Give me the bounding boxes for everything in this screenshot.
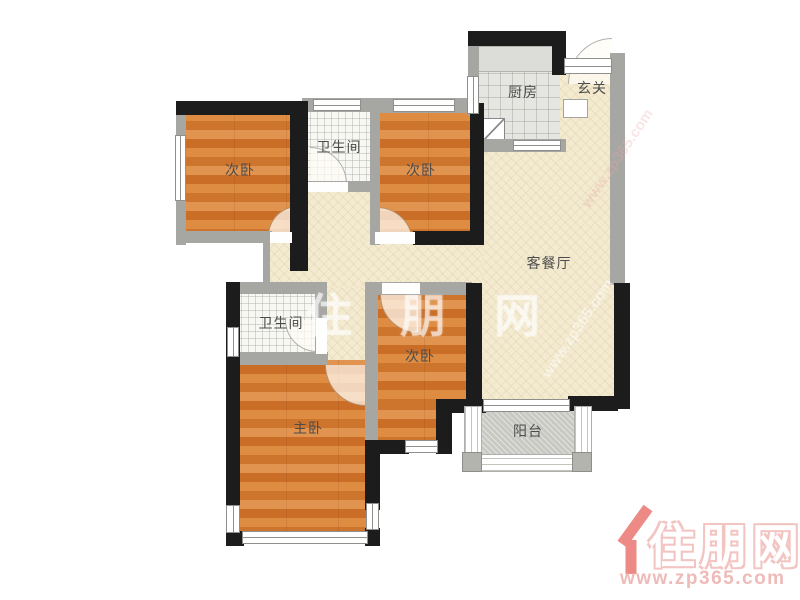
site-logo-name: 住朋网 [648, 508, 800, 577]
window-bedroom-tr [393, 99, 455, 112]
window-bathroom-mid [227, 327, 239, 357]
room-label-entry: 玄关 [577, 78, 607, 98]
kitchen-counter [478, 46, 556, 72]
wall-bedroom-right-step [436, 399, 452, 454]
wall-master-right-upper [365, 440, 380, 510]
entry-cabinet [563, 99, 588, 118]
wall-bedroom-tl-top [176, 101, 292, 115]
window-kitchen-left [467, 76, 479, 114]
room-label-bedroom-right: 次卧 [405, 346, 435, 366]
wall-bedroom-tr-bottom [413, 231, 483, 245]
room-label-bathroom-middle: 卫生间 [259, 313, 304, 333]
wall-bedroom-tr-right [470, 103, 484, 245]
window-bedroom-tl [175, 135, 186, 201]
wall-bathroom-top-left [290, 101, 308, 271]
window-bathroom-top [313, 99, 361, 111]
room-label-kitchen: 厨房 [508, 82, 538, 102]
room-label-bathroom-top: 卫生间 [317, 137, 362, 157]
balcony-sliding-door [483, 399, 570, 412]
room-label-living-dining: 客餐厅 [527, 253, 572, 273]
center-watermark: 住朋网 [306, 280, 588, 346]
room-label-bedroom-top-right: 次卧 [406, 160, 436, 180]
wall-bedroom-tl-bottom [176, 231, 272, 243]
window-master-bottom [242, 531, 368, 544]
wall-hallway-left [263, 240, 270, 288]
balcony-post-right [572, 452, 592, 472]
room-label-master-bedroom: 主卧 [293, 418, 323, 438]
entry-door-opening [564, 58, 612, 74]
corridor-floor-upper [302, 188, 378, 246]
bedroom-tr-door-opening [375, 232, 415, 244]
bedroom-tl-door-opening [270, 232, 292, 243]
window-master-left [226, 505, 240, 533]
window-master-right [366, 503, 379, 530]
bathroom-top-door-opening [308, 182, 348, 192]
room-label-balcony: 阳台 [513, 421, 543, 441]
balcony-post-left [462, 452, 482, 472]
site-logo-url: www.zp365.com [620, 568, 786, 590]
wall-left-outer-lower [226, 282, 240, 508]
wall-bathroom-top-right [370, 98, 380, 245]
wall-right-outer-lower [614, 283, 630, 409]
room-label-bedroom-top-left: 次卧 [225, 160, 255, 180]
floor-plan-image: 次卧 卫生间 次卧 厨房 玄关 客餐厅 卫生间 次卧 主卧 阳台 住朋网 www… [0, 0, 800, 600]
window-bedroom-right-bottom [405, 440, 438, 453]
window-kitchen-bottom [513, 140, 561, 151]
wall-master-top [236, 352, 328, 365]
